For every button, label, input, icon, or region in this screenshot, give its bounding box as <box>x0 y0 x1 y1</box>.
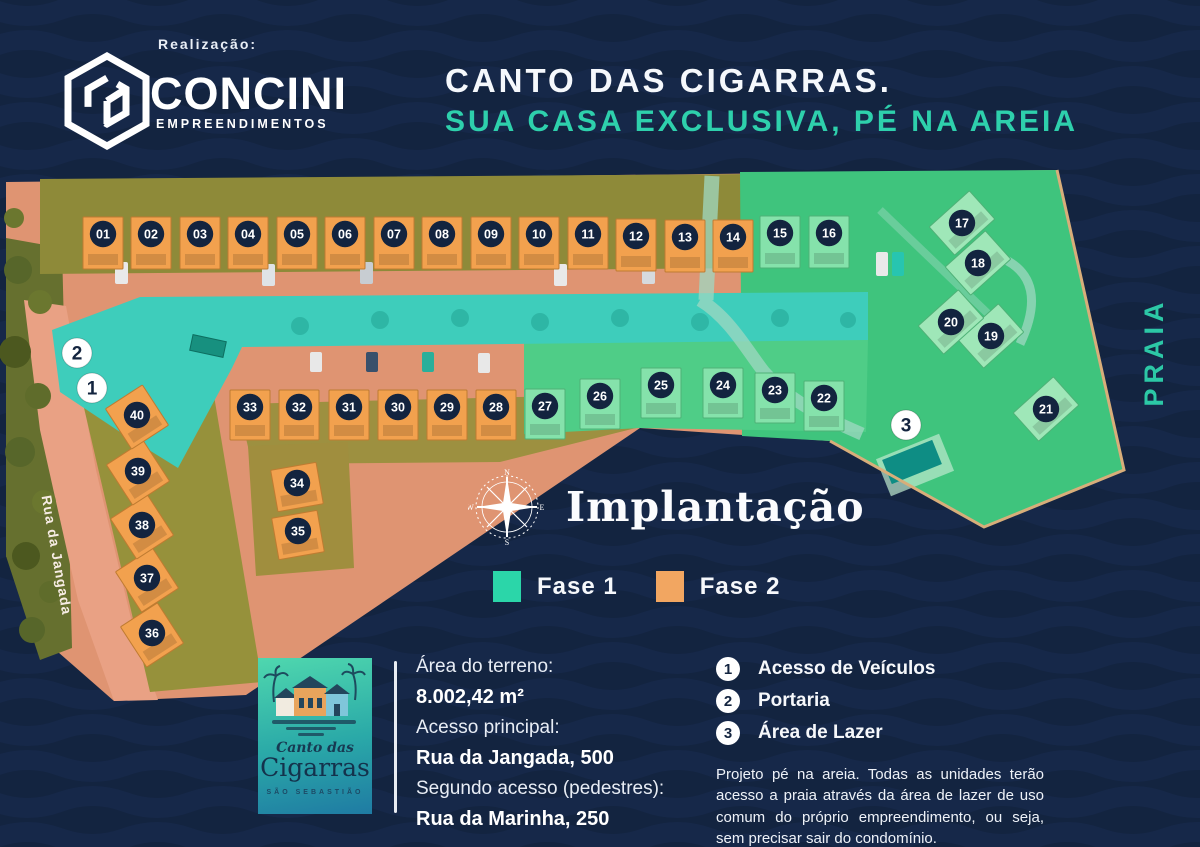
realization-label: Realização: <box>158 36 257 52</box>
key-item-3: 3 Área de Lazer <box>716 721 935 745</box>
unit-badge-18: 18 <box>965 250 991 276</box>
phase-legend: Fase 1 Fase 2 <box>493 571 780 602</box>
unit-badge-28: 28 <box>483 394 509 420</box>
svg-text:21: 21 <box>1039 403 1053 417</box>
praia-label: PRAIA <box>1139 297 1169 406</box>
svg-text:40: 40 <box>130 409 144 423</box>
svg-text:26: 26 <box>593 390 607 404</box>
unit-badge-35: 35 <box>285 518 311 544</box>
legend-item-fase2: Fase 2 <box>656 571 781 602</box>
key-item-1: 1 Acesso de Veículos <box>716 657 935 681</box>
unit-badge-40: 40 <box>124 402 150 428</box>
svg-text:32: 32 <box>292 401 306 415</box>
svg-text:36: 36 <box>145 627 159 641</box>
svg-text:22: 22 <box>817 392 831 406</box>
svg-text:S: S <box>505 538 509 546</box>
unit-badge-12: 12 <box>623 223 649 249</box>
unit-badge-25: 25 <box>648 372 674 398</box>
unit-badge-33: 33 <box>237 394 263 420</box>
svg-text:25: 25 <box>654 379 668 393</box>
brand-subtitle: EMPREENDIMENTOS <box>156 117 329 131</box>
unit-badge-16: 16 <box>816 220 842 246</box>
svg-text:10: 10 <box>532 228 546 242</box>
unit-badge-32: 32 <box>286 394 312 420</box>
project-details: Área do terreno: 8.002,42 m² Acesso prin… <box>416 656 706 839</box>
fase1-swatch <box>493 571 521 602</box>
unit-badge-34: 34 <box>284 470 310 496</box>
svg-text:24: 24 <box>716 379 730 393</box>
svg-text:E: E <box>540 503 545 512</box>
plan-title-row: NS WE Implantação <box>468 468 865 546</box>
svg-text:15: 15 <box>773 227 787 241</box>
svg-text:06: 06 <box>338 228 352 242</box>
unit-badge-24: 24 <box>710 372 736 398</box>
subtitle: SUA CASA EXCLUSIVA, PÉ NA AREIA <box>445 105 1078 139</box>
poi-marker-3: 3 <box>891 410 921 440</box>
svg-text:31: 31 <box>342 401 356 415</box>
unit-badge-08: 08 <box>429 221 455 247</box>
key-item-2: 2 Portaria <box>716 689 935 713</box>
legend-item-fase1: Fase 1 <box>493 571 618 602</box>
svg-text:38: 38 <box>135 519 149 533</box>
svg-text:17: 17 <box>955 217 969 231</box>
map-key-list: 1 Acesso de Veículos 2 Portaria 3 Área d… <box>716 657 935 753</box>
unit-badge-03: 03 <box>187 221 213 247</box>
svg-text:01: 01 <box>96 228 110 242</box>
unit-badge-38: 38 <box>129 512 155 538</box>
svg-text:19: 19 <box>984 330 998 344</box>
unit-badge-26: 26 <box>587 383 613 409</box>
poi-marker-2: 2 <box>62 338 92 368</box>
unit-badge-11: 11 <box>575 221 601 247</box>
fase2-swatch <box>656 571 684 602</box>
svg-text:3: 3 <box>901 416 912 437</box>
poster-page: Realização: CONCINI EMPREENDIMENTOS CANT… <box>0 0 1200 847</box>
key-3-label: Área de Lazer <box>758 722 883 744</box>
detail-value: Rua da Jangada, 500 <box>416 747 706 770</box>
key-2-badge: 2 <box>716 689 740 713</box>
unit-badge-21: 21 <box>1033 396 1059 422</box>
unit-badge-04: 04 <box>235 221 261 247</box>
project-logo-city: SÃO SEBASTIÃO <box>267 789 364 796</box>
unit-badge-19: 19 <box>978 323 1004 349</box>
unit-badge-30: 30 <box>385 394 411 420</box>
key-3-badge: 3 <box>716 721 740 745</box>
svg-text:39: 39 <box>131 465 145 479</box>
svg-text:03: 03 <box>193 228 207 242</box>
unit-badge-01: 01 <box>90 221 116 247</box>
key-2-label: Portaria <box>758 690 830 712</box>
svg-text:30: 30 <box>391 401 405 415</box>
unit-badge-31: 31 <box>336 394 362 420</box>
svg-text:12: 12 <box>629 230 643 244</box>
unit-badge-02: 02 <box>138 221 164 247</box>
detail-value: 8.002,42 m² <box>416 686 706 709</box>
fase2-label: Fase 2 <box>700 573 781 601</box>
svg-text:2: 2 <box>72 344 83 365</box>
unit-badge-23: 23 <box>762 377 788 403</box>
svg-text:07: 07 <box>387 228 401 242</box>
unit-badge-09: 09 <box>478 221 504 247</box>
svg-text:08: 08 <box>435 228 449 242</box>
unit-badge-14: 14 <box>720 224 746 250</box>
svg-text:02: 02 <box>144 228 158 242</box>
unit-badge-15: 15 <box>767 220 793 246</box>
concini-hexagon-logo-icon <box>62 52 152 150</box>
detail-label: Segundo acesso (pedestres): <box>416 778 706 800</box>
svg-text:29: 29 <box>440 401 454 415</box>
unit-badge-37: 37 <box>134 565 160 591</box>
unit-badge-07: 07 <box>381 221 407 247</box>
unit-badge-36: 36 <box>139 620 165 646</box>
svg-text:28: 28 <box>489 401 503 415</box>
unit-badge-13: 13 <box>672 224 698 250</box>
unit-badge-05: 05 <box>284 221 310 247</box>
svg-text:04: 04 <box>241 228 255 242</box>
key-1-badge: 1 <box>716 657 740 681</box>
plan-title: Implantação <box>566 483 865 531</box>
svg-text:1: 1 <box>87 379 98 400</box>
unit-badge-20: 20 <box>938 309 964 335</box>
main-title: CANTO DAS CIGARRAS. <box>445 62 892 100</box>
svg-text:N: N <box>504 468 510 477</box>
unit-badge-27: 27 <box>532 393 558 419</box>
vertical-divider <box>394 661 397 813</box>
svg-text:34: 34 <box>290 477 304 491</box>
project-description: Projeto pé na areia. Todas as unidades t… <box>716 764 1044 847</box>
svg-text:11: 11 <box>581 228 594 242</box>
svg-text:05: 05 <box>290 228 304 242</box>
svg-text:23: 23 <box>768 384 782 398</box>
unit-badge-29: 29 <box>434 394 460 420</box>
unit-badge-17: 17 <box>949 210 975 236</box>
svg-text:18: 18 <box>971 257 985 271</box>
svg-text:09: 09 <box>484 228 498 242</box>
compass-rose-icon: NS WE <box>468 468 546 546</box>
unit-badge-22: 22 <box>811 385 837 411</box>
detail-label: Área do terreno: <box>416 656 706 678</box>
svg-text:37: 37 <box>140 572 154 586</box>
unit-badge-06: 06 <box>332 221 358 247</box>
fase1-label: Fase 1 <box>537 573 618 601</box>
key-1-label: Acesso de Veículos <box>758 658 935 680</box>
detail-value: Rua da Marinha, 250 <box>416 808 706 831</box>
svg-text:33: 33 <box>243 401 257 415</box>
svg-text:35: 35 <box>291 525 305 539</box>
svg-text:13: 13 <box>678 231 692 245</box>
village-houses-icon <box>274 676 350 716</box>
unit-badge-10: 10 <box>526 221 552 247</box>
detail-label: Acesso principal: <box>416 717 706 739</box>
svg-text:W: W <box>468 503 474 512</box>
svg-text:20: 20 <box>944 316 958 330</box>
water-reflection <box>272 720 356 736</box>
unit-badge-39: 39 <box>125 458 151 484</box>
project-logo-art <box>258 658 372 742</box>
project-logo-name: Cigarras <box>260 753 370 782</box>
svg-text:27: 27 <box>538 400 552 414</box>
poi-marker-1: 1 <box>77 373 107 403</box>
brand-name: CONCINI <box>150 68 347 120</box>
svg-text:16: 16 <box>822 227 836 241</box>
project-logo-card: Canto das Cigarras SÃO SEBASTIÃO <box>258 658 372 814</box>
svg-text:14: 14 <box>726 231 740 245</box>
